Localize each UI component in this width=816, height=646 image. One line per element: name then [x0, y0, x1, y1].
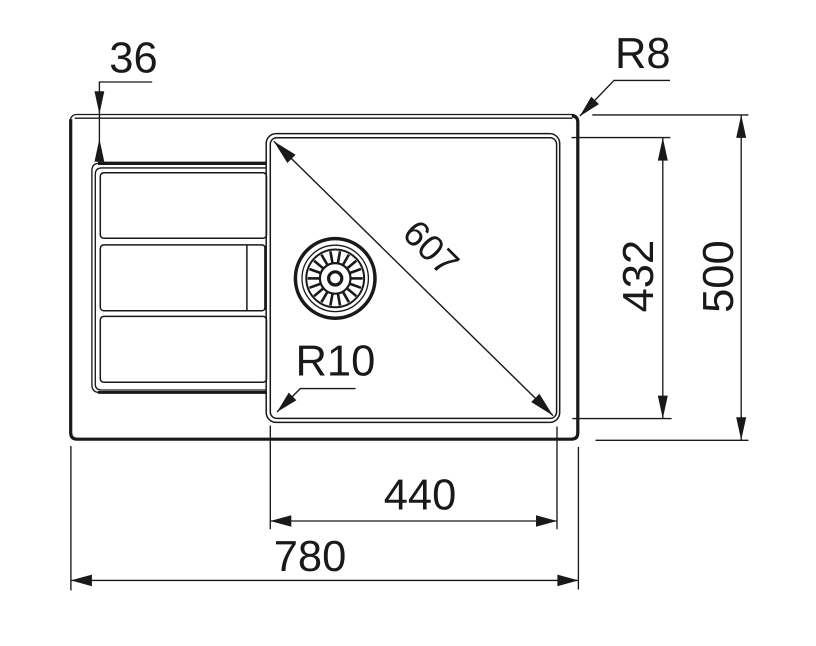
- svg-text:780: 780: [274, 533, 347, 581]
- svg-text:440: 440: [384, 472, 457, 520]
- svg-text:607: 607: [395, 212, 467, 284]
- svg-text:R10: R10: [295, 338, 375, 386]
- svg-text:432: 432: [615, 240, 663, 313]
- svg-text:36: 36: [109, 34, 157, 82]
- svg-text:500: 500: [695, 240, 743, 313]
- svg-text:R8: R8: [615, 30, 671, 78]
